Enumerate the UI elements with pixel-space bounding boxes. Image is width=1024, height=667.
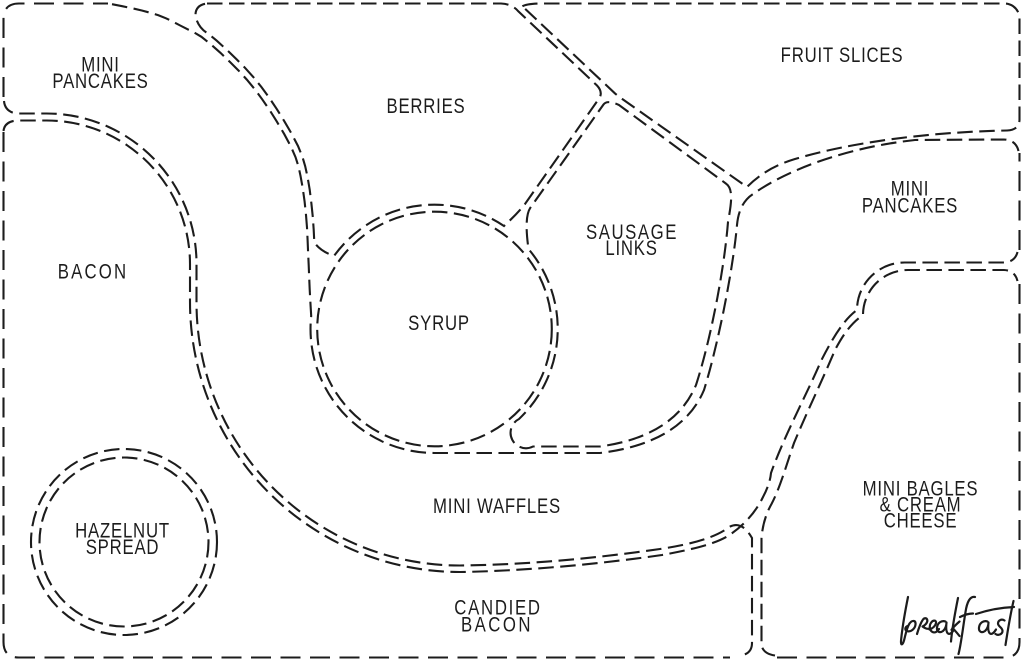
svg-text:BACON: BACON (58, 261, 129, 284)
svg-text:BERRIES: BERRIES (386, 95, 465, 118)
svg-text:MINI WAFFLES: MINI WAFFLES (433, 495, 561, 518)
svg-text:PANCAKES: PANCAKES (52, 70, 148, 93)
svg-text:FRUIT SLICES: FRUIT SLICES (781, 44, 904, 67)
svg-text:SYRUP: SYRUP (408, 312, 470, 335)
svg-text:SPREAD: SPREAD (86, 536, 160, 559)
svg-text:LINKS: LINKS (605, 237, 657, 260)
svg-text:CHEESE: CHEESE (884, 510, 958, 533)
svg-text:PANCAKES: PANCAKES (862, 195, 958, 218)
svg-text:BACON: BACON (461, 614, 533, 637)
